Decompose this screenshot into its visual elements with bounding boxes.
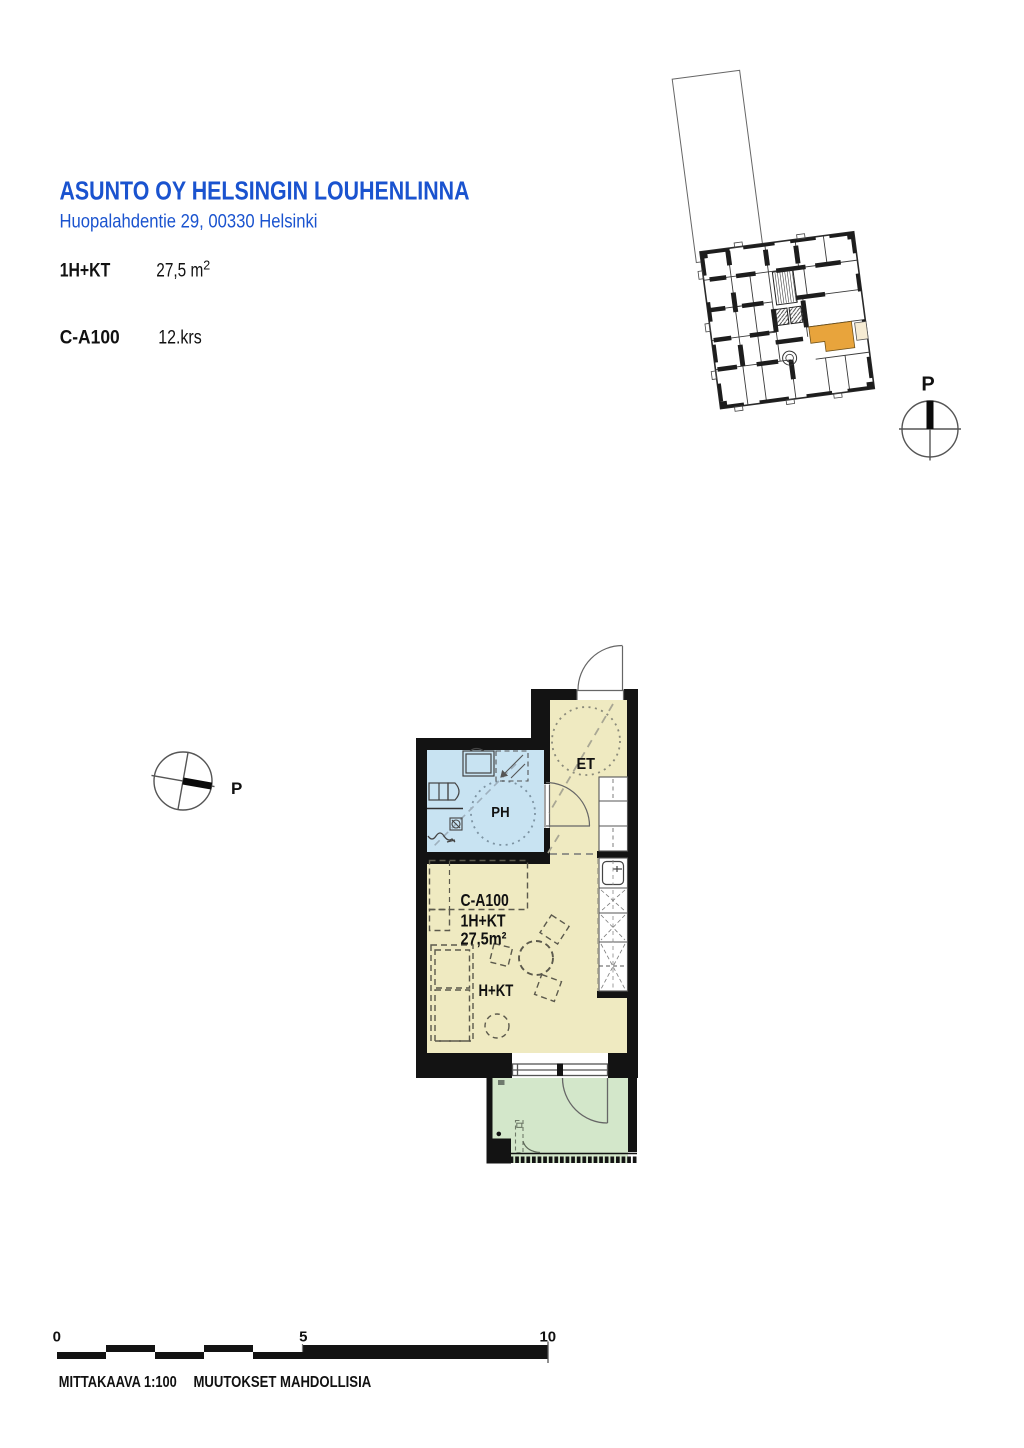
svg-text:H+KT: H+KT xyxy=(479,981,514,1000)
svg-text:P: P xyxy=(231,779,242,798)
svg-text:27,5m²: 27,5m² xyxy=(461,928,507,948)
svg-text:27,5 m2: 27,5 m2 xyxy=(156,258,210,281)
svg-text:MUUTOKSET MAHDOLLISIA: MUUTOKSET MAHDOLLISIA xyxy=(194,1374,372,1391)
svg-text:ET: ET xyxy=(577,756,596,773)
svg-text:PH: PH xyxy=(491,805,509,821)
svg-text:MITTAKAAVA 1:100: MITTAKAAVA 1:100 xyxy=(59,1374,177,1391)
svg-text:P: P xyxy=(921,374,934,396)
svg-text:C-A100: C-A100 xyxy=(60,327,120,349)
svg-text:12.krs: 12.krs xyxy=(158,328,202,349)
svg-text:1H+KT: 1H+KT xyxy=(60,259,111,281)
svg-text:C-A100: C-A100 xyxy=(461,890,509,910)
svg-text:0: 0 xyxy=(53,1328,61,1345)
svg-text:ASUNTO OY HELSINGIN LOUHENLINN: ASUNTO OY HELSINGIN LOUHENLINNA xyxy=(60,176,470,206)
svg-text:5: 5 xyxy=(299,1328,307,1345)
svg-text:Huopalahdentie 29, 00330 Helsi: Huopalahdentie 29, 00330 Helsinki xyxy=(60,210,318,232)
